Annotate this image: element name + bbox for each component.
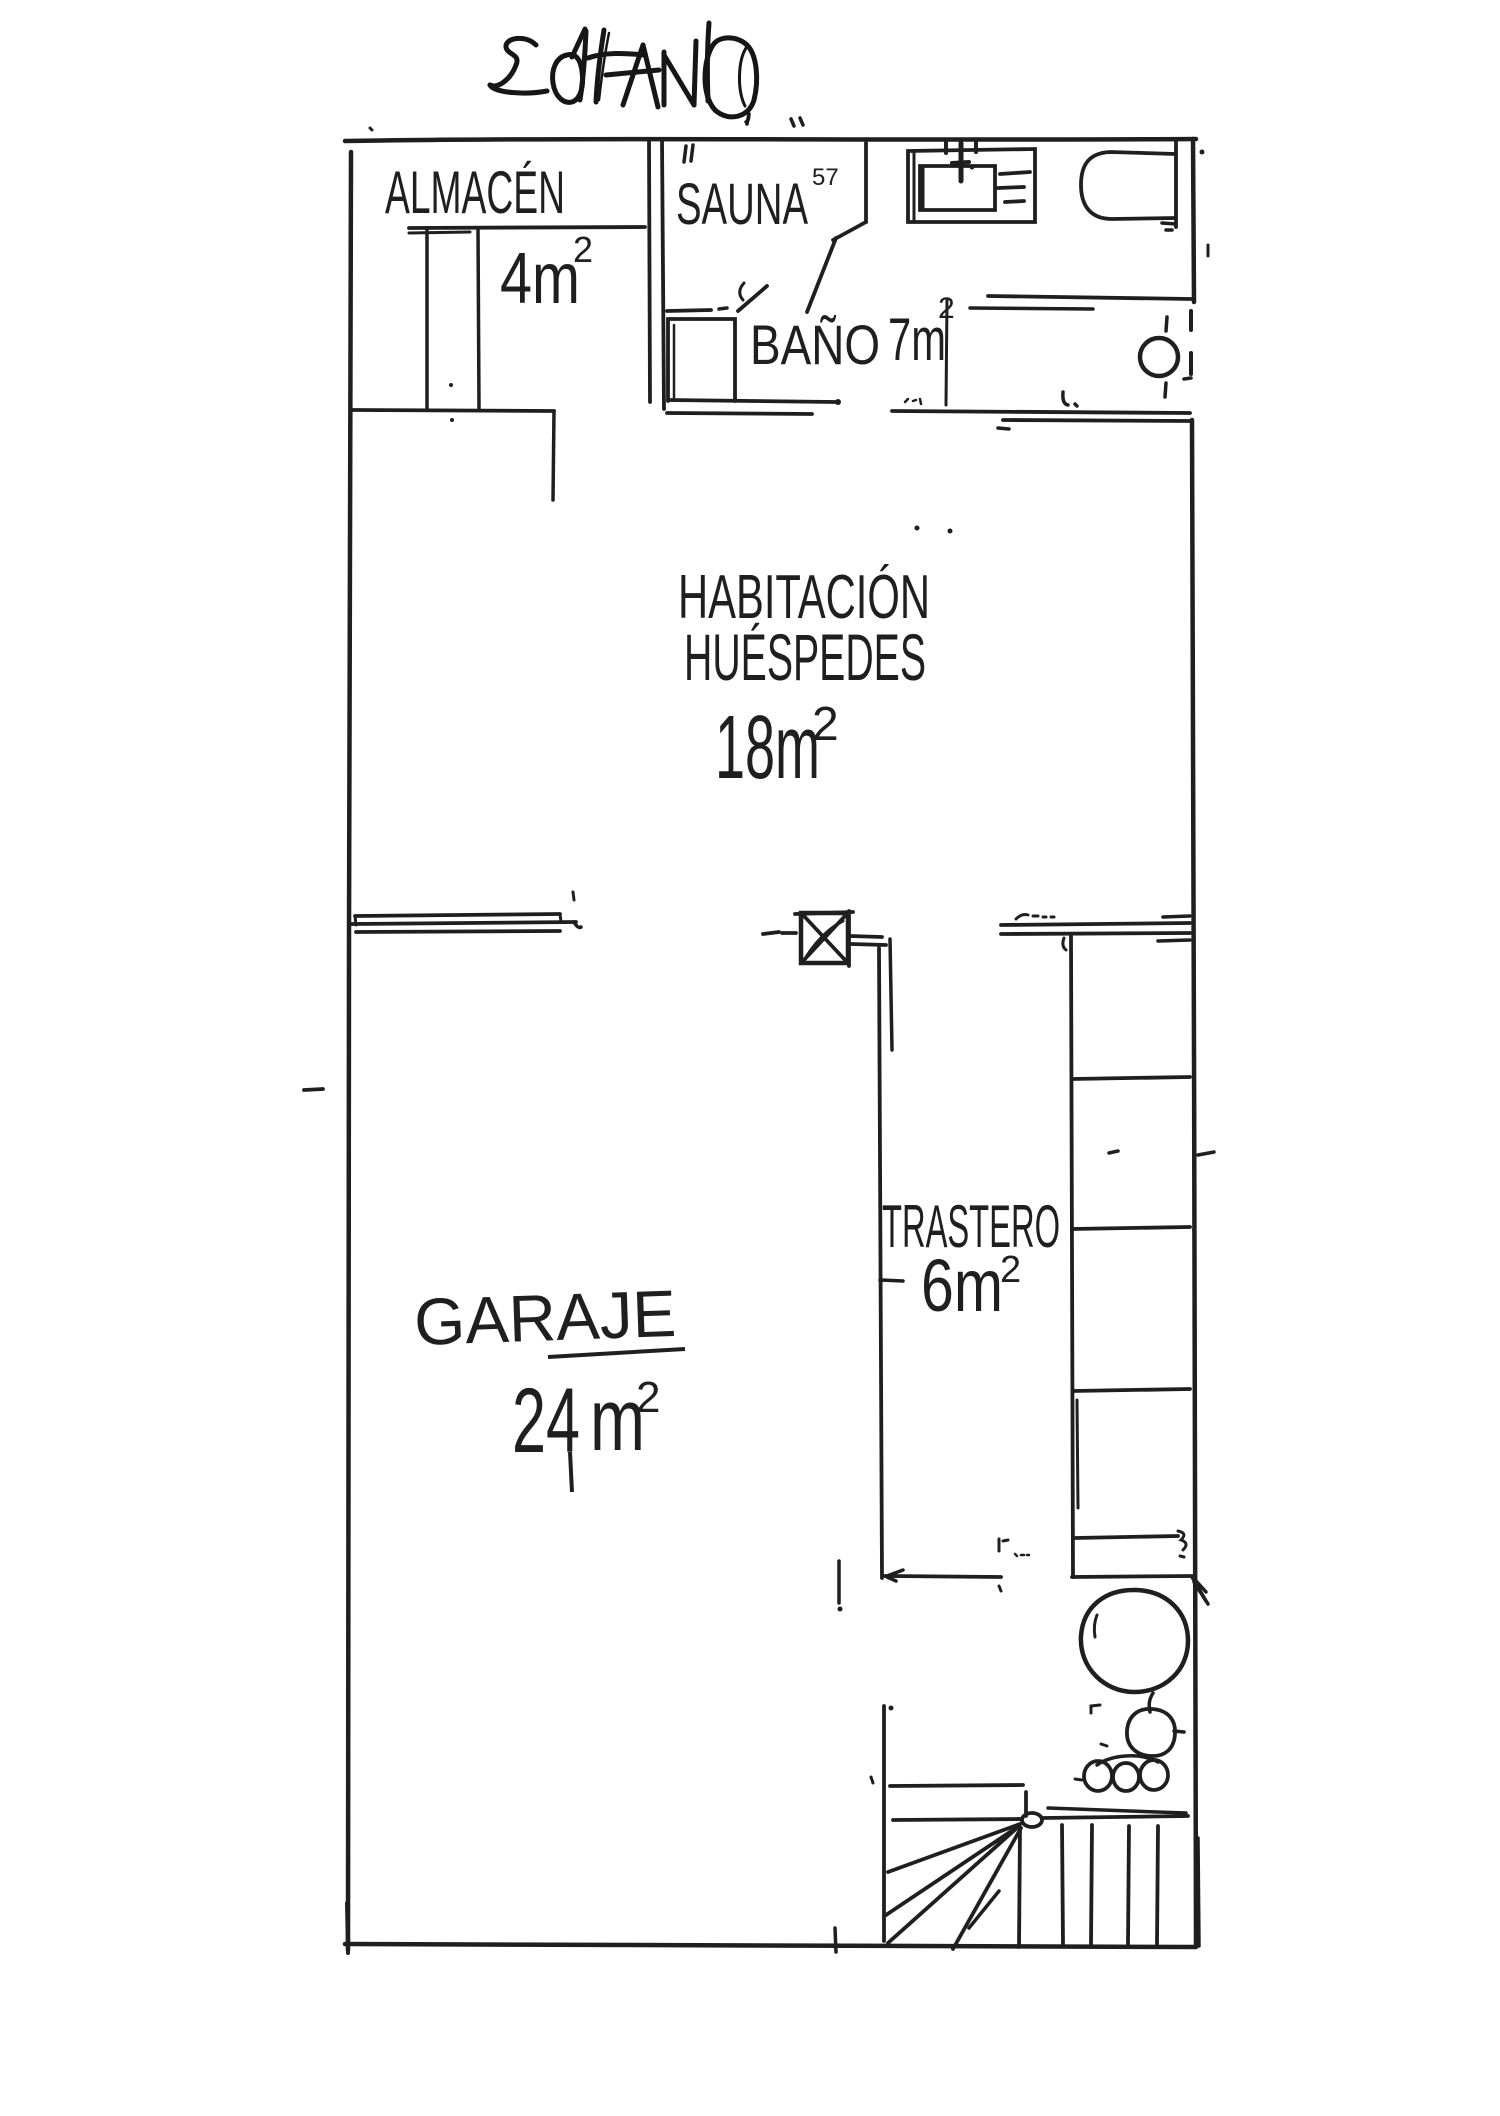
svg-text:2: 2 [812,698,839,751]
svg-text:ALMACÉN: ALMACÉN [385,159,565,226]
svg-text:2: 2 [573,229,593,270]
svg-text:GARAJE: GARAJE [413,1276,677,1359]
svg-text:2: 2 [1000,1249,1021,1291]
svg-text:BAÑO: BAÑO [750,313,880,376]
svg-text:HUÉSPEDES: HUÉSPEDES [684,620,926,694]
svg-text:SAUNA: SAUNA [676,172,808,237]
svg-text:57: 57 [812,164,839,191]
svg-text:2: 2 [636,1373,660,1422]
svg-text:6m: 6m [921,1244,1003,1327]
svg-text:4m: 4m [500,239,580,319]
svg-text:2: 2 [938,292,955,325]
svg-text:18m: 18m [715,698,820,798]
